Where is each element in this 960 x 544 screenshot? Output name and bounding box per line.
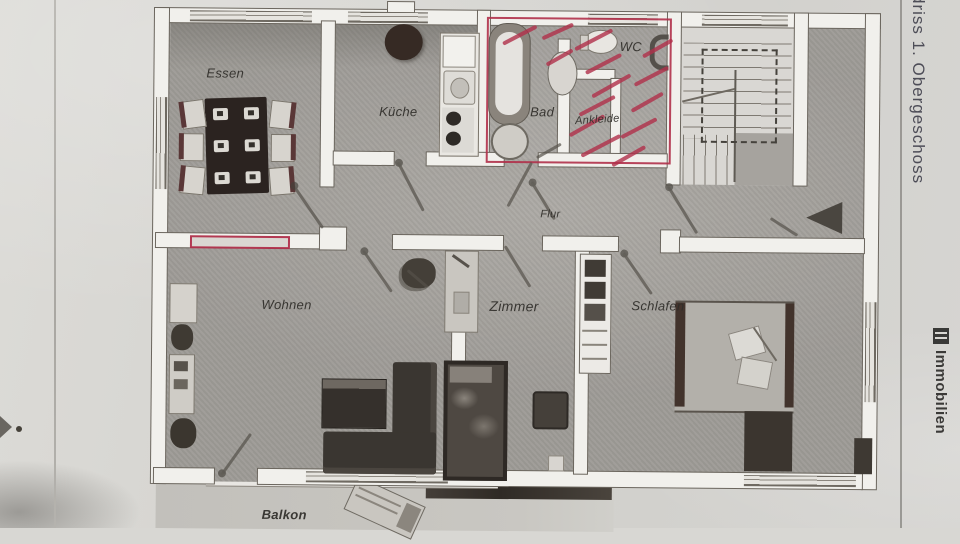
door-swing-line xyxy=(536,143,562,159)
door-swings-layer xyxy=(0,0,960,535)
door-swing-line xyxy=(407,269,428,288)
door-swing-line xyxy=(221,433,252,475)
door-hinge-smudge xyxy=(359,246,370,257)
brand-name: Immobilien xyxy=(932,350,949,434)
room-label-wohnen: Wohnen xyxy=(261,297,311,312)
door-swing-line xyxy=(770,217,798,236)
door-hinge-smudge xyxy=(393,157,404,168)
room-label-kueche: Küche xyxy=(379,104,418,119)
door-swing-line xyxy=(363,250,393,293)
room-label-wc: WC xyxy=(620,39,642,54)
door-hinge-smudge xyxy=(619,248,630,259)
brand-logo-icon xyxy=(933,328,949,344)
room-label-flur: Flur xyxy=(540,208,560,220)
floor-plan: Essen Küche Bad WC Ankleide Flur Wohnen … xyxy=(0,0,960,535)
room-label-balkon: Balkon xyxy=(262,507,307,522)
door-swing-line xyxy=(397,161,425,211)
door-swing-line xyxy=(504,245,531,287)
door-hinge-smudge xyxy=(527,177,538,188)
room-label-essen: Essen xyxy=(206,65,244,80)
door-swing-line xyxy=(623,252,653,295)
sheet-title-vertical: driss 1. Obergeschoss xyxy=(908,0,928,244)
margin-rule-line xyxy=(900,0,902,528)
floorplan-photo: Essen Küche Bad WC Ankleide Flur Wohnen … xyxy=(0,0,960,528)
door-hinge-smudge xyxy=(663,182,674,193)
room-label-zimmer: Zimmer xyxy=(489,298,538,314)
door-hinge-smudge xyxy=(216,468,227,479)
brand-mark: Immobilien xyxy=(932,328,949,434)
door-swing-line xyxy=(293,184,325,228)
door-hinge-smudge xyxy=(289,180,300,191)
door-swing-line xyxy=(667,186,698,234)
room-label-schlafen: Schlafen xyxy=(631,298,684,313)
room-label-bad: Bad xyxy=(530,104,554,119)
